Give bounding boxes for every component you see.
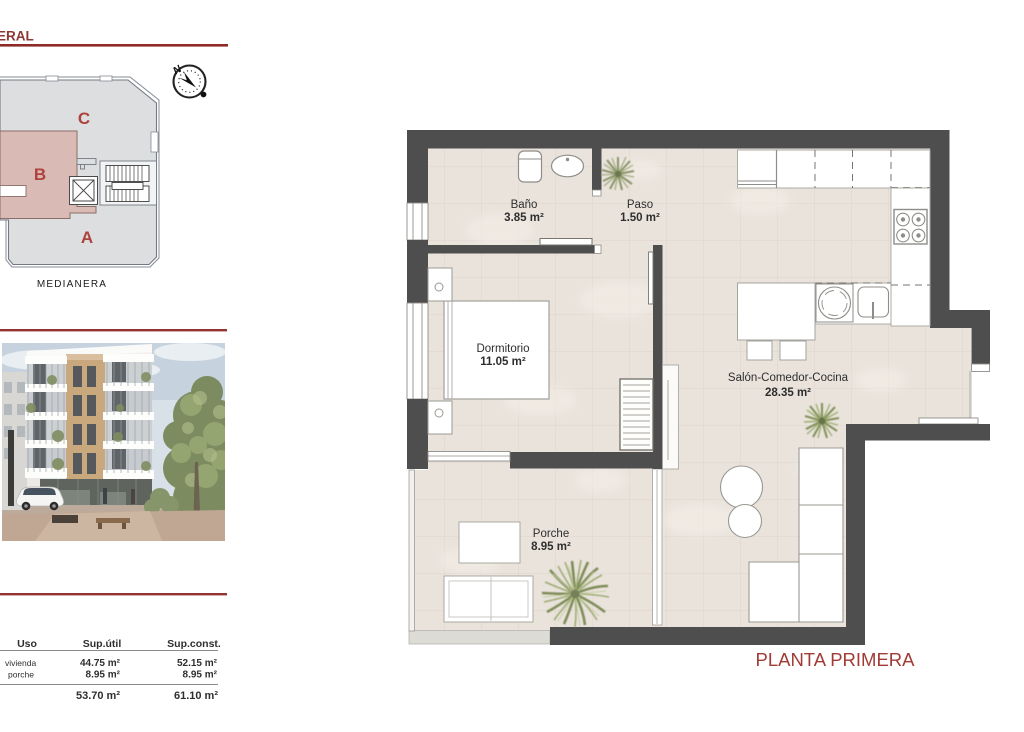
svg-text:C: C <box>78 109 90 128</box>
svg-text:A: A <box>81 228 93 247</box>
svg-text:Baño: Baño <box>511 199 538 211</box>
svg-text:8.95 m²: 8.95 m² <box>531 541 571 553</box>
svg-text:Sup.útil: Sup.útil <box>83 638 122 650</box>
svg-text:porche: porche <box>8 670 34 680</box>
svg-text:Dormitorio: Dormitorio <box>476 343 529 355</box>
svg-text:PLANTA PRIMERA: PLANTA PRIMERA <box>755 649 915 670</box>
svg-text:44.75 m²: 44.75 m² <box>80 658 121 669</box>
svg-text:MEDIANERA: MEDIANERA <box>37 279 107 290</box>
svg-text:53.70 m²: 53.70 m² <box>76 690 120 702</box>
svg-text:Paso: Paso <box>627 199 653 211</box>
svg-text:8.95 m²: 8.95 m² <box>183 670 218 681</box>
svg-text:1.50 m²: 1.50 m² <box>620 212 660 224</box>
svg-text:N: N <box>171 63 184 77</box>
svg-text:Salón-Comedor-Cocina: Salón-Comedor-Cocina <box>728 372 849 384</box>
svg-text:B: B <box>34 165 46 184</box>
svg-text:Sup.const.: Sup.const. <box>167 638 221 650</box>
svg-text:52.15 m²: 52.15 m² <box>177 658 218 669</box>
svg-text:61.10 m²: 61.10 m² <box>174 690 218 702</box>
svg-text:vivienda: vivienda <box>5 658 36 668</box>
svg-text:8.95 m²: 8.95 m² <box>86 670 121 681</box>
svg-text:Uso: Uso <box>17 638 37 650</box>
svg-text:ERAL: ERAL <box>0 29 34 44</box>
svg-text:Porche: Porche <box>533 528 569 540</box>
svg-text:11.05 m²: 11.05 m² <box>480 356 526 368</box>
svg-text:28.35 m²: 28.35 m² <box>765 387 811 399</box>
svg-text:3.85 m²: 3.85 m² <box>504 212 544 224</box>
